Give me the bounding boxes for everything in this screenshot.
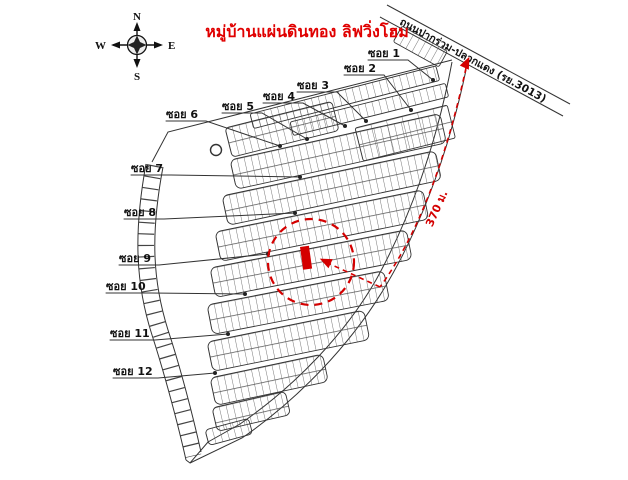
- soi-label-2: ซอย 2: [344, 62, 376, 75]
- soi-label-10: ซอย 10: [106, 280, 146, 293]
- soi-label-4: ซอย 4: [263, 90, 295, 103]
- roundabout: [211, 145, 222, 156]
- distance-label: 370 ม.: [423, 188, 450, 228]
- soi-label-7: ซอย 7: [131, 162, 163, 175]
- soi-label-9: ซอย 9: [119, 252, 151, 265]
- compass-rose: N S E W: [95, 11, 175, 83]
- compass-w-label: W: [95, 40, 106, 52]
- page-root: ถนนปากร่วม-ปลวกแดง (รย.3013): [0, 0, 628, 480]
- lot-bands: [205, 26, 455, 445]
- soi-label-11: ซอย 11: [110, 327, 150, 340]
- soi-label-6: ซอย 6: [166, 108, 198, 121]
- compass-s-label: S: [134, 71, 140, 83]
- south-arrow-icon: [134, 59, 141, 68]
- west-arrow-icon: [111, 42, 120, 49]
- map-title: หมู่บ้านแผ่นดินทอง ลิฟวิ่งโฮม: [205, 20, 409, 43]
- soi-label-8: ซอย 8: [124, 206, 156, 219]
- soi-label-1: ซอย 1: [368, 47, 400, 60]
- estate-map: ถนนปากร่วม-ปลวกแดง (รย.3013): [0, 0, 628, 480]
- soi-label-3: ซอย 3: [297, 79, 329, 92]
- soi-label-12: ซอย 12: [113, 365, 153, 378]
- compass-n-label: N: [133, 11, 141, 23]
- soi-label-5: ซอย 5: [222, 100, 254, 113]
- compass-e-label: E: [168, 40, 175, 52]
- north-arrow-icon: [134, 22, 141, 31]
- east-arrow-icon: [154, 42, 163, 49]
